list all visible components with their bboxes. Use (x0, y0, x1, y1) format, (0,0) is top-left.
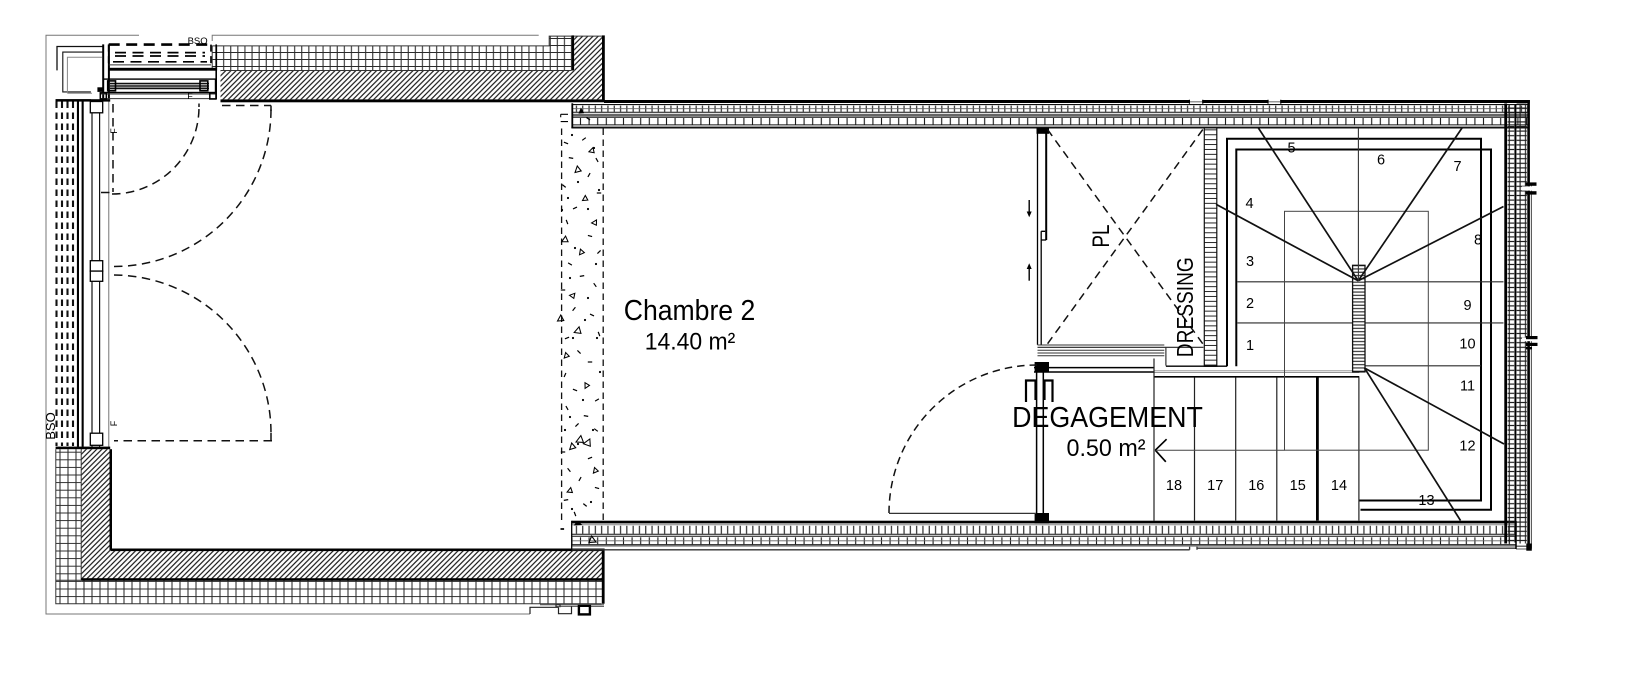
svg-text:4: 4 (1245, 196, 1253, 212)
svg-text:F: F (187, 91, 193, 101)
svg-text:BSO: BSO (43, 412, 58, 439)
svg-text:12: 12 (1459, 439, 1475, 455)
svg-text:14.40 m²: 14.40 m² (645, 329, 736, 356)
svg-text:DRESSING: DRESSING (1172, 257, 1198, 357)
svg-text:18: 18 (1166, 478, 1182, 494)
svg-text:3: 3 (1246, 254, 1254, 270)
svg-text:17: 17 (1207, 478, 1223, 494)
svg-text:8: 8 (1474, 233, 1482, 249)
svg-text:5: 5 (1287, 141, 1295, 157)
svg-text:DEGAGEMENT: DEGAGEMENT (1012, 401, 1203, 433)
svg-text:13: 13 (1418, 493, 1434, 509)
svg-text:10: 10 (1459, 337, 1475, 353)
svg-text:16: 16 (1248, 478, 1264, 494)
svg-text:2: 2 (1246, 296, 1254, 312)
svg-text:6: 6 (1377, 153, 1385, 169)
svg-text:F: F (109, 420, 119, 426)
svg-text:F: F (109, 128, 119, 134)
svg-text:7: 7 (1453, 159, 1461, 175)
svg-text:9: 9 (1463, 298, 1471, 314)
svg-text:14: 14 (1331, 478, 1347, 494)
svg-text:15: 15 (1290, 478, 1306, 494)
svg-text:1: 1 (1246, 338, 1254, 354)
svg-text:11: 11 (1460, 379, 1475, 395)
svg-text:PL: PL (1088, 225, 1115, 248)
svg-text:Chambre 2: Chambre 2 (624, 294, 756, 326)
svg-text:0.50 m²: 0.50 m² (1067, 435, 1146, 462)
svg-text:BSO: BSO (188, 36, 208, 47)
